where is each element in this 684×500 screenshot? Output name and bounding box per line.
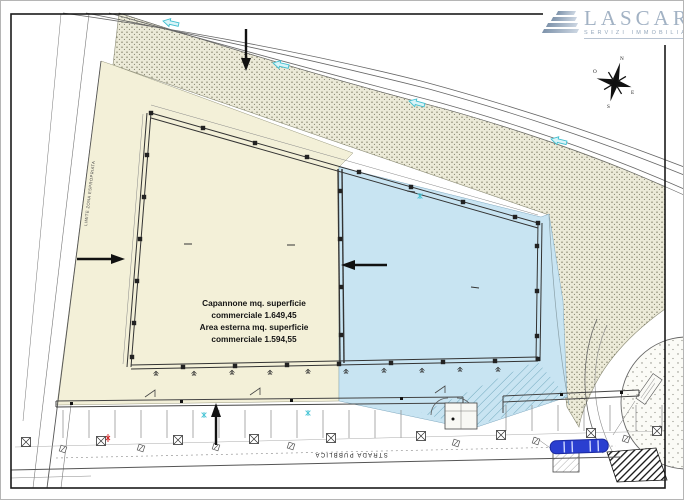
compass-label-south: S xyxy=(607,104,610,110)
area-annotation-line-1: Capannone mq. superficie xyxy=(202,298,306,308)
compass-label-east: E xyxy=(631,90,634,96)
traffic-island xyxy=(607,448,667,482)
lascari-logo: LASCARI SERVIZI IMMOBILIARI xyxy=(543,1,684,45)
compass-label-north: N xyxy=(620,56,624,62)
area-annotation-line-2: commerciale 1.649,45 xyxy=(211,310,297,320)
site-plan-drawing: LIMITE ZONA ESPROPRIATA xyxy=(1,1,684,500)
logo-building-icon xyxy=(543,9,578,37)
logo-tagline: SERVIZI IMMOBILIARI xyxy=(584,30,684,36)
area-annotation-line-4: commerciale 1.594,55 xyxy=(211,334,297,344)
compass-label-west: O xyxy=(593,69,597,75)
car-icon xyxy=(550,439,608,454)
logo-name: LASCARI xyxy=(584,8,684,29)
area-annotation-line-3: Area esterna mq. superficie xyxy=(200,322,309,332)
road-label: STRADA PUBBLICA xyxy=(314,451,387,457)
site-plan-sheet: LIMITE ZONA ESPROPRIATA xyxy=(0,0,684,500)
